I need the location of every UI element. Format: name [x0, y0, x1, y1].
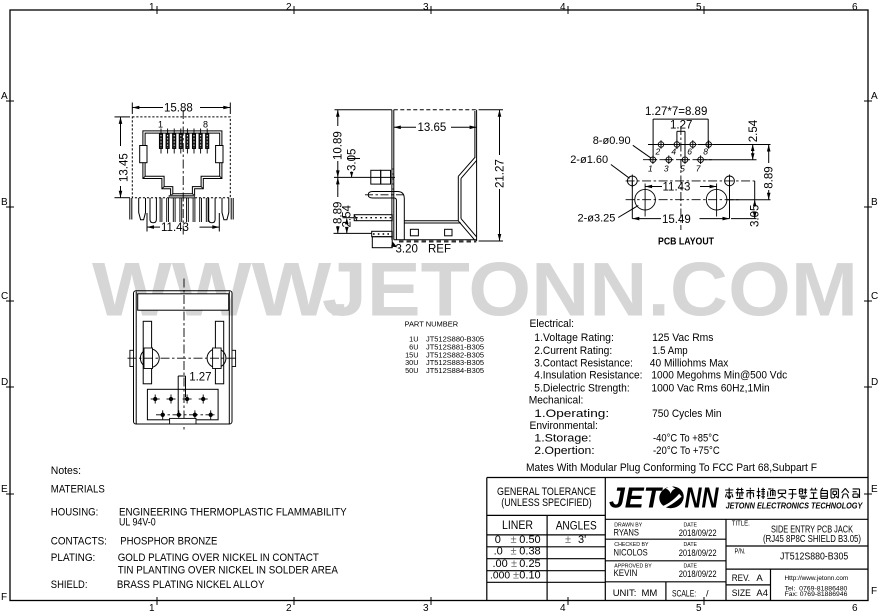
svg-text:1.Operating:: 1.Operating: — [534, 408, 609, 420]
svg-text:5: 5 — [696, 603, 702, 613]
svg-text:WWW.: WWW. — [92, 248, 350, 333]
svg-text:DATE: DATE — [684, 542, 698, 548]
svg-text:UNIT:: UNIT: — [613, 588, 637, 599]
svg-text:-40°C To +85°C: -40°C To +85°C — [653, 433, 719, 445]
svg-text:2: 2 — [286, 603, 292, 613]
svg-text:±: ± — [511, 546, 517, 558]
svg-text:2.Current Rating:: 2.Current Rating: — [534, 345, 612, 357]
svg-text:125 Vac Rms: 125 Vac Rms — [652, 332, 714, 344]
svg-text:E: E — [1, 484, 8, 495]
svg-text:2018/09/22: 2018/09/22 — [679, 569, 717, 579]
svg-text:F: F — [871, 586, 877, 597]
svg-text:4: 4 — [560, 603, 566, 613]
svg-text:0.50: 0.50 — [519, 534, 540, 546]
svg-text:A: A — [1, 91, 8, 102]
svg-text:21.27: 21.27 — [495, 159, 507, 188]
svg-text:/: / — [706, 589, 709, 599]
svg-text:3: 3 — [423, 603, 429, 613]
svg-text:3.20: 3.20 — [396, 243, 418, 255]
svg-text:±: ± — [511, 558, 517, 570]
svg-text:13.45: 13.45 — [119, 153, 131, 182]
svg-text:RYANS: RYANS — [614, 528, 640, 538]
svg-text:D: D — [871, 377, 878, 388]
svg-text:1.Voltage Rating:: 1.Voltage Rating: — [534, 332, 614, 344]
svg-text:A: A — [756, 573, 763, 584]
svg-text:2018/09/22: 2018/09/22 — [679, 548, 717, 558]
svg-text:±: ± — [513, 570, 519, 582]
svg-text:1: 1 — [158, 120, 163, 130]
svg-text:PART NUMBER: PART NUMBER — [405, 320, 459, 329]
svg-text:BRASS PLATING NICKEL ALLOY: BRASS PLATING NICKEL ALLOY — [117, 579, 265, 591]
svg-text:HOUSING:: HOUSING: — [51, 506, 99, 518]
svg-text:A: A — [871, 91, 878, 102]
svg-text:Http://www.jetonn.com: Http://www.jetonn.com — [785, 575, 849, 582]
svg-text:10.89: 10.89 — [333, 131, 345, 160]
svg-text:JET: JET — [609, 483, 663, 515]
svg-text:JT512S884-B305: JT512S884-B305 — [426, 366, 484, 375]
svg-text:1.27*7=8.89: 1.27*7=8.89 — [645, 106, 707, 118]
svg-text:C: C — [871, 291, 878, 302]
svg-text:-20°C To +75°C: -20°C To +75°C — [653, 445, 720, 457]
svg-text:7: 7 — [696, 164, 701, 174]
svg-text:0.25: 0.25 — [519, 558, 540, 570]
svg-text:2-ø3.25: 2-ø3.25 — [578, 213, 616, 225]
svg-text:PHOSPHOR BRONZE: PHOSPHOR BRONZE — [120, 536, 217, 548]
svg-text:(UNLESS SPECIFIED): (UNLESS SPECIFIED) — [501, 497, 591, 509]
svg-text:1000 Vac Rms 60Hz,1Min: 1000 Vac Rms 60Hz,1Min — [651, 382, 769, 394]
svg-text:±: ± — [565, 534, 571, 546]
svg-text:15.88: 15.88 — [164, 103, 193, 115]
svg-text:11.43: 11.43 — [663, 182, 691, 194]
svg-text:8: 8 — [703, 147, 708, 157]
svg-text:REV.: REV. — [732, 573, 750, 584]
svg-text:Environmental:: Environmental: — [530, 420, 598, 432]
svg-text:6: 6 — [687, 147, 692, 157]
svg-text:JT512S880-B305: JT512S880-B305 — [780, 551, 849, 562]
svg-text:8.89: 8.89 — [763, 166, 775, 188]
svg-text:1000 Megohms Min@500 Vdc: 1000 Megohms Min@500 Vdc — [651, 370, 787, 382]
svg-text:ANGLES: ANGLES — [556, 521, 597, 533]
svg-text:5.Dielectric Strength:: 5.Dielectric Strength: — [534, 382, 629, 394]
svg-text:4: 4 — [671, 147, 676, 157]
svg-text:JETONN.COM: JETONN.COM — [322, 248, 858, 333]
svg-text:3.Contact Resistance:: 3.Contact Resistance: — [534, 358, 633, 370]
svg-text:±: ± — [511, 534, 517, 546]
svg-text:SIZE: SIZE — [732, 588, 751, 599]
svg-text:A4: A4 — [756, 588, 768, 599]
svg-text:5: 5 — [696, 2, 702, 13]
svg-text:0.10: 0.10 — [519, 570, 540, 582]
svg-text:JETONN ELECTRONICS TECHNOLOGY: JETONN ELECTRONICS TECHNOLOGY — [726, 501, 864, 511]
svg-text:3.05: 3.05 — [346, 149, 358, 171]
svg-text:GOLD PLATING OVER NICKEL IN CO: GOLD PLATING OVER NICKEL IN CONTACT — [118, 552, 319, 564]
svg-text:LINER: LINER — [502, 520, 533, 532]
svg-text:NICOLOS: NICOLOS — [614, 548, 648, 558]
svg-text:SCALE:: SCALE: — [672, 589, 696, 599]
svg-text:P/N.: P/N. — [735, 549, 746, 556]
svg-text:2.Opertion:: 2.Opertion: — [534, 445, 594, 457]
svg-text:1.5 Amp: 1.5 Amp — [652, 345, 688, 357]
svg-text:2.54: 2.54 — [341, 205, 353, 228]
svg-text:B: B — [871, 197, 878, 208]
svg-text:11.43: 11.43 — [161, 222, 189, 234]
svg-text:F: F — [1, 592, 7, 603]
svg-text:CONTACTS:: CONTACTS: — [51, 536, 107, 548]
svg-text:D: D — [1, 377, 8, 388]
svg-text:TITLE.: TITLE. — [732, 521, 750, 528]
svg-text:13.65: 13.65 — [418, 122, 447, 134]
svg-text:0: 0 — [495, 534, 501, 546]
svg-text:8: 8 — [203, 120, 208, 130]
svg-text:E: E — [871, 484, 878, 495]
svg-text:15.49: 15.49 — [662, 214, 691, 226]
svg-text:3': 3' — [578, 534, 586, 546]
svg-text:.000: .000 — [490, 571, 510, 582]
svg-text:.00: .00 — [493, 558, 508, 570]
svg-text:2-ø1.60: 2-ø1.60 — [570, 154, 608, 166]
svg-text:3.05: 3.05 — [749, 205, 761, 227]
svg-text:B: B — [1, 197, 8, 208]
svg-text:Mechanical:: Mechanical: — [529, 394, 584, 406]
svg-text:1.27: 1.27 — [189, 372, 211, 384]
svg-text:4.Insulation Resistance:: 4.Insulation Resistance: — [534, 370, 642, 382]
svg-text:750 Cycles Min: 750 Cycles Min — [652, 408, 721, 420]
svg-text:1: 1 — [149, 603, 155, 613]
svg-text:1: 1 — [648, 164, 653, 174]
svg-text:2: 2 — [286, 2, 292, 13]
svg-text:1.Storage:: 1.Storage: — [534, 433, 591, 445]
svg-text:MM: MM — [642, 588, 658, 599]
svg-text:PCB LAYOUT: PCB LAYOUT — [658, 236, 714, 248]
svg-text:4: 4 — [560, 2, 566, 13]
svg-text:2.54: 2.54 — [748, 119, 760, 142]
svg-text:TIN PLANTING OVER NICKEL IN SO: TIN PLANTING OVER NICKEL IN SOLDER AREA — [118, 565, 339, 577]
svg-text:40 Milliohms Max: 40 Milliohms Max — [650, 358, 729, 370]
svg-text:50U: 50U — [405, 366, 418, 375]
svg-text:1: 1 — [149, 2, 155, 13]
svg-text:MATERIALS: MATERIALS — [51, 483, 105, 495]
svg-text:.0: .0 — [494, 546, 503, 558]
svg-text:Fax: 0769-81886946: Fax: 0769-81886946 — [785, 591, 848, 598]
svg-text:8-ø0.90: 8-ø0.90 — [593, 135, 631, 147]
svg-text:Mates With Modular Plug Confor: Mates With Modular Plug Conforming To FC… — [526, 462, 817, 474]
svg-text:UL 94V-0: UL 94V-0 — [119, 517, 156, 529]
svg-text:6: 6 — [852, 2, 858, 13]
svg-text:3: 3 — [423, 2, 429, 13]
svg-text:0.38: 0.38 — [519, 546, 540, 558]
svg-text:2018/09/22: 2018/09/22 — [679, 528, 717, 538]
svg-text:3: 3 — [664, 164, 669, 174]
svg-text:2: 2 — [655, 147, 661, 157]
svg-text:PLATING:: PLATING: — [51, 552, 96, 564]
svg-text:C: C — [1, 291, 8, 302]
svg-text:NN: NN — [685, 483, 720, 515]
svg-text:Notes:: Notes: — [51, 465, 81, 477]
svg-text:Electrical:: Electrical: — [530, 318, 575, 330]
svg-text:6: 6 — [852, 603, 858, 613]
svg-text:(RJ45 8P8C SHIELD B3.05): (RJ45 8P8C SHIELD B3.05) — [763, 534, 861, 545]
svg-text:REF: REF — [428, 243, 451, 255]
svg-text:SHIELD:: SHIELD: — [51, 579, 88, 591]
svg-text:KEVIN: KEVIN — [614, 568, 638, 578]
